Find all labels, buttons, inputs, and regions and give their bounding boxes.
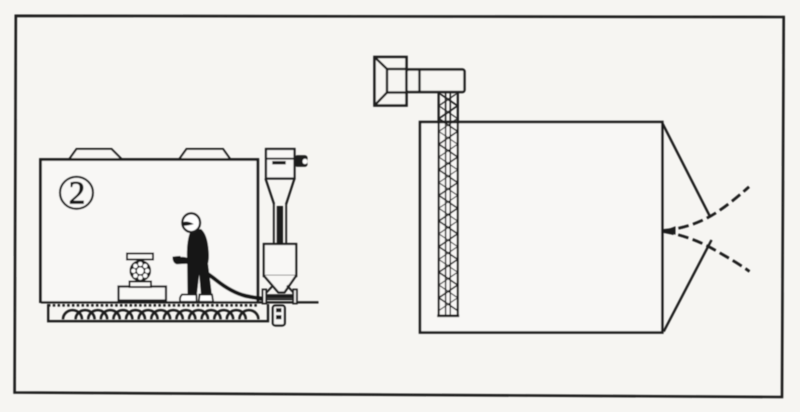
svg-text:2: 2 (69, 176, 86, 212)
